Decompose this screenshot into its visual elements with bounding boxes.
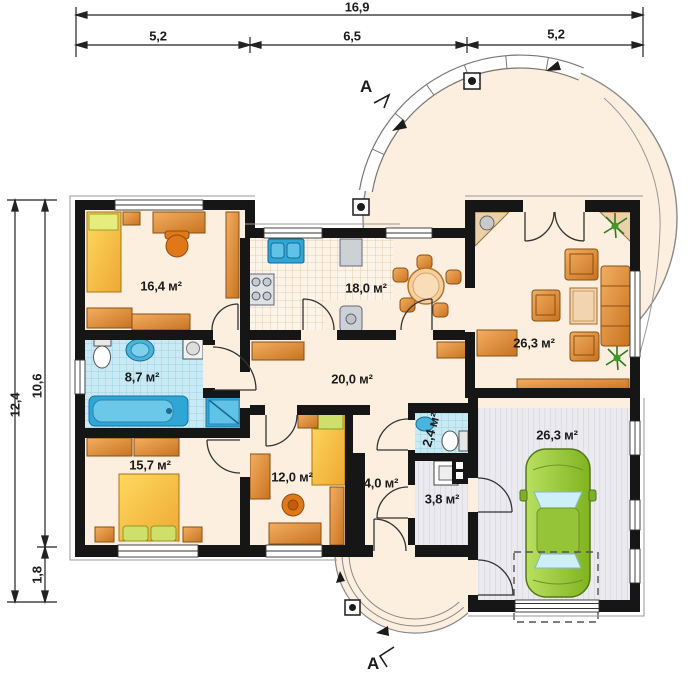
room-label-kitchen: 18,0 м² xyxy=(345,281,386,296)
pillow xyxy=(151,526,176,541)
section-marker-bottom: A xyxy=(367,654,379,674)
room-label-living-room: 26,3 м² xyxy=(513,336,554,351)
coffee-table xyxy=(570,288,597,324)
pillow xyxy=(123,526,148,541)
car xyxy=(520,449,596,597)
garage-gate xyxy=(515,600,599,612)
dim-total-width: 16,9 xyxy=(345,0,370,15)
floor-plan-drawing xyxy=(0,0,700,680)
room-label-bathroom: 8,7 м² xyxy=(125,370,159,385)
desk xyxy=(153,212,205,233)
chair xyxy=(166,235,188,257)
mirror xyxy=(589,490,596,501)
room-label-bedroom-3: 12,0 м² xyxy=(271,470,312,485)
room-label-vestibule: 4,0 м² xyxy=(364,476,398,491)
dim-side-upper: 10,6 xyxy=(30,374,45,399)
room-label-boiler-room: 3,8 м² xyxy=(425,492,459,507)
windshield xyxy=(534,492,582,508)
desk xyxy=(269,523,321,544)
dim-side-lower: 1,8 xyxy=(30,566,45,583)
nightstand xyxy=(183,527,202,542)
porch xyxy=(335,553,468,636)
room-label-bedroom-1: 16,4 м² xyxy=(140,279,181,294)
dim-segment-right: 5,2 xyxy=(547,27,564,42)
stove xyxy=(249,274,274,305)
dim-total-height: 12,4 xyxy=(8,393,23,418)
cabinet xyxy=(477,330,517,356)
porch-arrow-icon xyxy=(376,626,389,636)
mirror xyxy=(520,490,527,501)
floor-plan: 16,9 5,2 6,5 5,2 12,4 10,6 1,8 A A 16,4 … xyxy=(0,0,700,680)
section-marker-top: A xyxy=(360,77,372,97)
wardrobe xyxy=(226,212,239,298)
room-label-hall: 20,0 м² xyxy=(331,372,372,387)
fridge xyxy=(340,239,362,266)
room-label-garage: 26,3 м² xyxy=(536,428,577,443)
pillow xyxy=(89,214,118,230)
toilet xyxy=(459,431,468,451)
room-label-bedroom-2: 15,7 м² xyxy=(129,458,170,473)
nightstand xyxy=(95,527,114,542)
dim-segment-mid: 6,5 xyxy=(343,29,360,44)
dim-segment-left: 5,2 xyxy=(149,29,166,44)
